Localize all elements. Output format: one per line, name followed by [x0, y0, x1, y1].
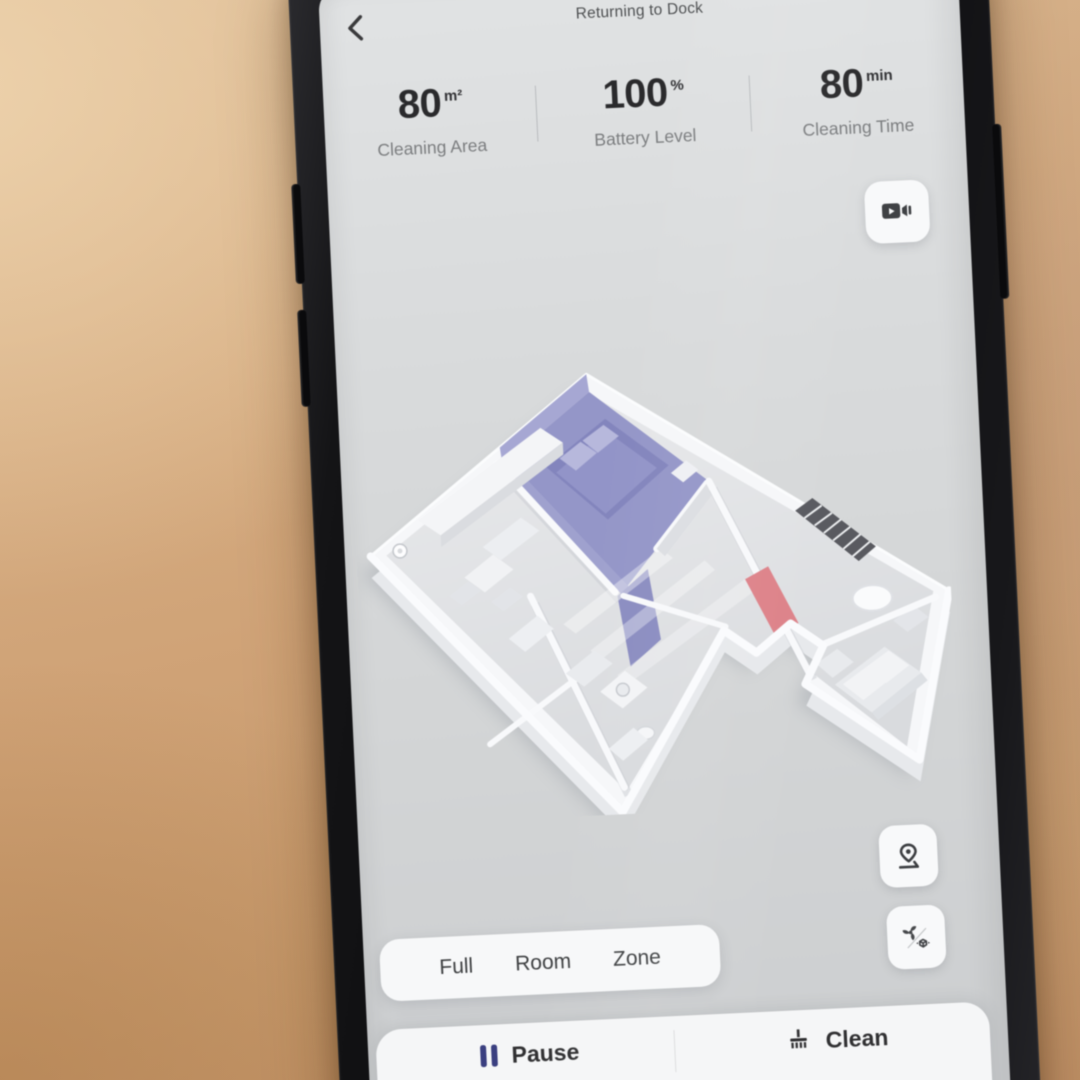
- clean-mode-selector: Full Room Zone: [379, 924, 722, 1002]
- fan-icon: [902, 925, 917, 940]
- clean-button[interactable]: Clean: [682, 1001, 998, 1080]
- washer-door: [616, 683, 629, 696]
- pause-button[interactable]: Pause: [375, 1016, 691, 1080]
- stat-cleaning-area: 80m² Cleaning Area: [323, 78, 540, 164]
- action-panel: Pause: [375, 1001, 998, 1080]
- power-button: [992, 124, 1009, 299]
- mode-option-room[interactable]: Room: [515, 950, 572, 977]
- volume-down-button: [297, 310, 311, 407]
- camera-button[interactable]: [864, 179, 931, 244]
- video-camera-icon: [881, 199, 914, 224]
- stat-battery: 100% Battery Level: [536, 68, 753, 154]
- battery-unit: %: [670, 77, 684, 95]
- photo-background: Returning to Dock 80m² Cleaning Area 100…: [0, 0, 1080, 1080]
- mode-option-full[interactable]: Full: [439, 955, 474, 981]
- map-pin-icon: [894, 841, 923, 870]
- view-toggle-icons: [900, 920, 933, 953]
- pause-label: Pause: [511, 1037, 580, 1070]
- clean-label: Clean: [825, 1022, 889, 1055]
- round-table: [852, 584, 893, 611]
- stats-row: 80m² Cleaning Area 100% Battery Level 80…: [323, 57, 966, 163]
- battery-label: Battery Level: [538, 122, 752, 153]
- floorplan-map[interactable]: [347, 329, 960, 826]
- volume-up-button: [291, 184, 305, 284]
- stat-value: 80min: [749, 57, 964, 118]
- phone-frame: Returning to Dock 80m² Cleaning Area 100…: [286, 0, 1046, 1080]
- floorplan-svg: [347, 329, 960, 826]
- stat-cleaning-time: 80min Cleaning Time: [749, 57, 966, 143]
- cleaning-time-value: 80: [819, 61, 865, 107]
- view-mode-toggle-button[interactable]: [886, 904, 947, 970]
- cleaning-area-value: 80: [397, 81, 443, 127]
- app-screen: Returning to Dock 80m² Cleaning Area 100…: [318, 0, 1015, 1080]
- cleaning-area-unit: m²: [444, 87, 463, 105]
- clean-broom-icon: [784, 1026, 812, 1054]
- battery-value: 100: [601, 70, 668, 117]
- stat-value: 100%: [536, 68, 751, 129]
- locate-robot-button[interactable]: [878, 824, 939, 889]
- page-title: Returning to Dock: [319, 0, 959, 36]
- pause-icon: [480, 1040, 498, 1067]
- mode-option-zone[interactable]: Zone: [613, 946, 662, 972]
- cleaning-time-unit: min: [866, 67, 893, 85]
- 3d-rotate-icon: [916, 939, 930, 947]
- stat-value: 80m²: [323, 78, 538, 139]
- cleaning-time-label: Cleaning Time: [751, 112, 965, 143]
- cleaning-area-label: Cleaning Area: [325, 133, 539, 164]
